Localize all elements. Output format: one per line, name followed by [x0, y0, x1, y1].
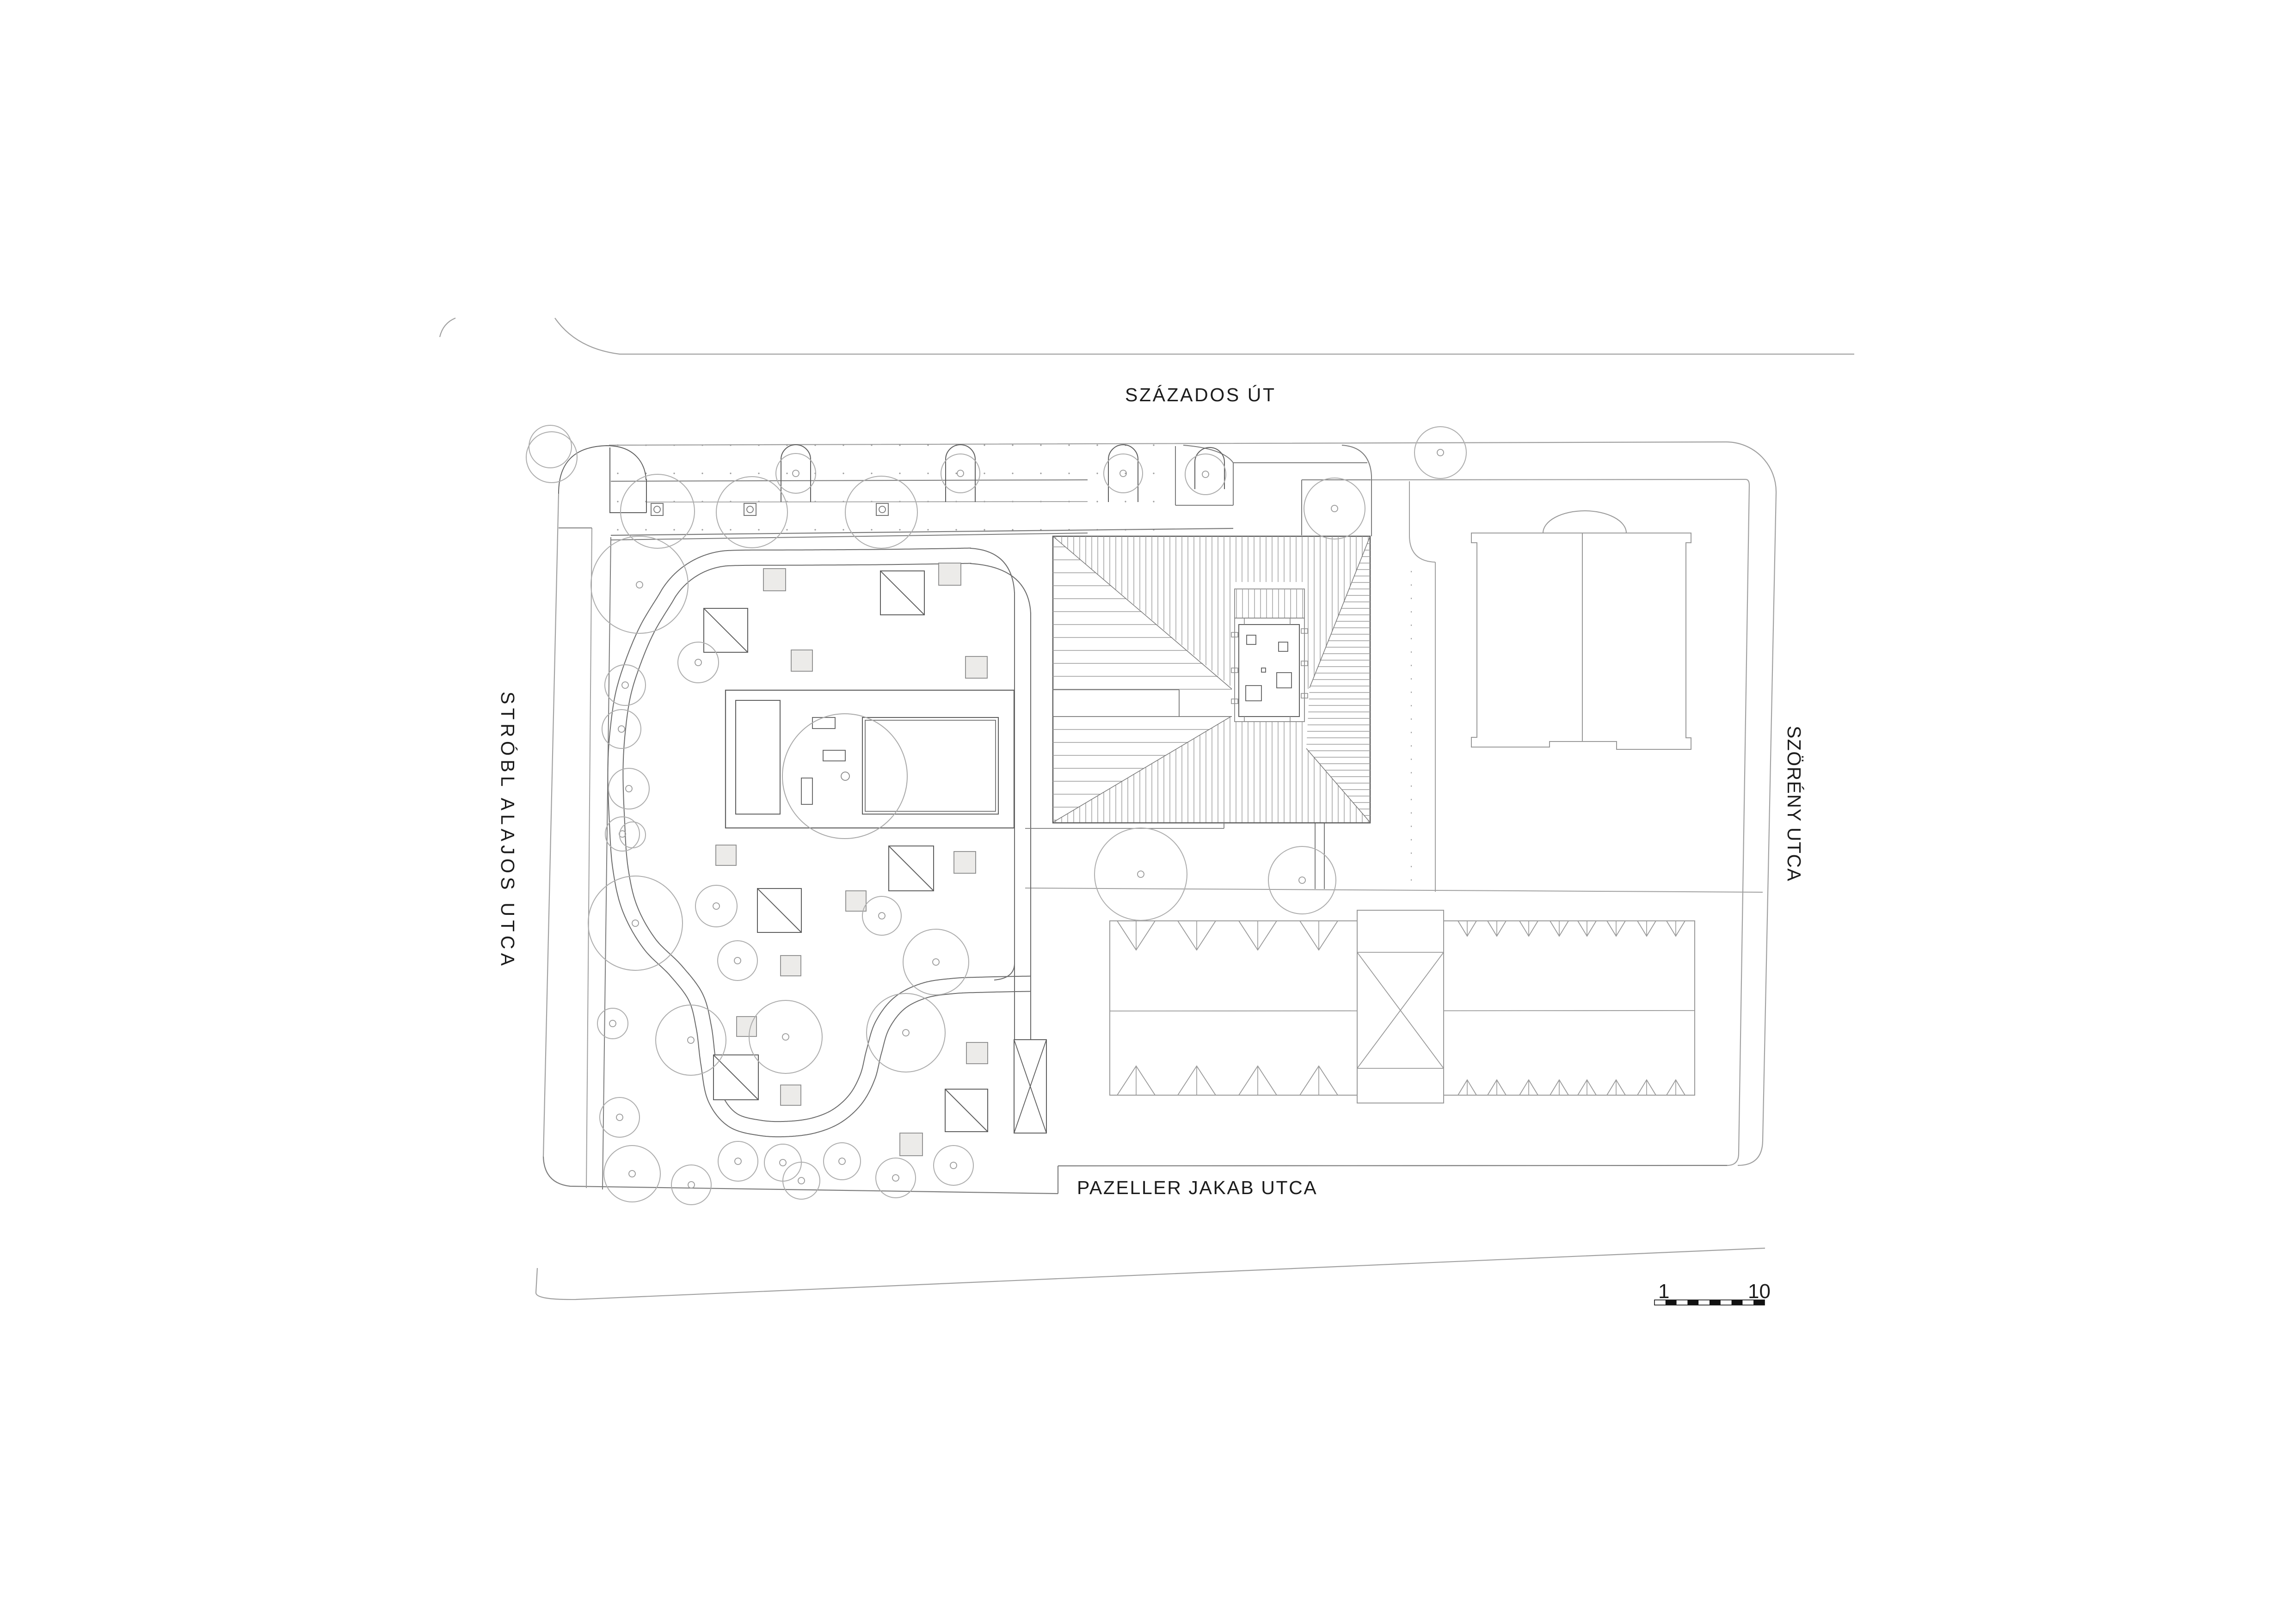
- svg-text:1: 1: [1658, 1280, 1669, 1303]
- svg-text:SZÖRÉNY UTCA: SZÖRÉNY UTCA: [1784, 726, 1805, 882]
- svg-text:10: 10: [1748, 1280, 1771, 1303]
- svg-text:STRÓBL ALAJOS UTCA: STRÓBL ALAJOS UTCA: [497, 692, 518, 969]
- svg-text:SZÁZADOS ÚT: SZÁZADOS ÚT: [1125, 384, 1276, 405]
- svg-text:PAZELLER JAKAB UTCA: PAZELLER JAKAB UTCA: [1077, 1177, 1317, 1198]
